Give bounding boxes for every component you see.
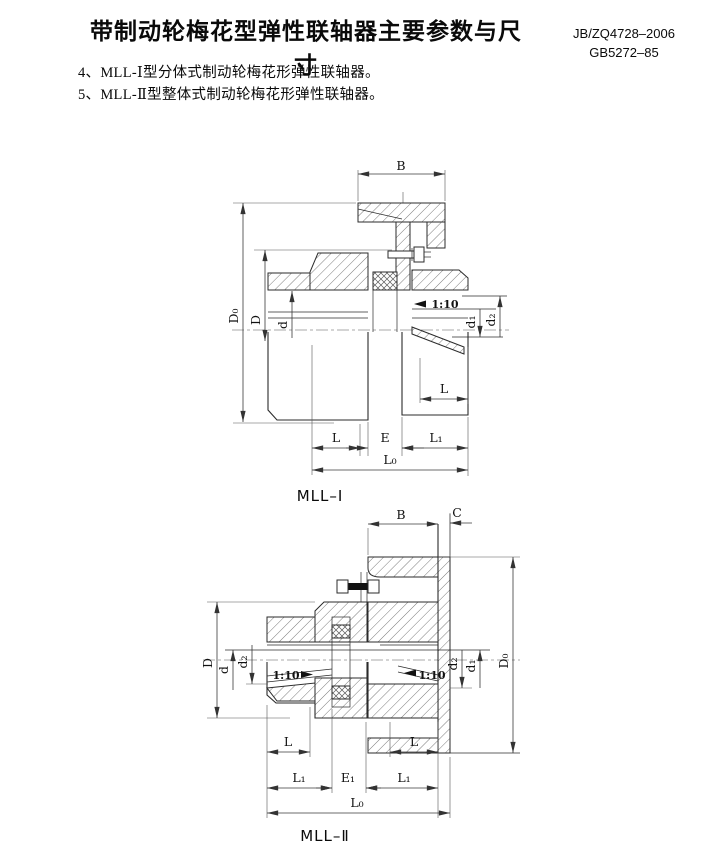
dim-label-lbore-1: L bbox=[440, 381, 448, 396]
dim-label-ll-2: L bbox=[284, 734, 292, 749]
standard-gb: GB5272–85 bbox=[556, 43, 692, 62]
dim-label-l-1: L bbox=[332, 430, 340, 445]
dim-label-d2l-2: d₂ bbox=[235, 655, 250, 668]
elastomer-spider-section bbox=[332, 617, 350, 707]
dim-label-d-1: d bbox=[275, 321, 290, 329]
dim-label-l1-1: L₁ bbox=[429, 430, 442, 445]
dim-label-l0-2: L₀ bbox=[350, 795, 363, 810]
standard-numbers: JB/ZQ4728–2006 GB5272–85 bbox=[556, 24, 692, 62]
dim-label-taper-left: 1:10 bbox=[272, 669, 299, 682]
dim-label-l0-1: L₀ bbox=[383, 452, 396, 467]
figure-mll-1-drawing: B D₀ D d d₁ d₂ 1:10 L L E bbox=[225, 160, 515, 490]
dim-label-b2: B bbox=[396, 507, 405, 522]
dim-label-d2r-2: d₂ bbox=[445, 657, 460, 670]
figure-mll-2-drawing: B C D₀ D d d₂ 1:10 1:10 d₂ d₁ bbox=[195, 505, 525, 825]
dim-label-taper-1: 1:10 bbox=[431, 298, 458, 311]
dim-label-e-1: E bbox=[380, 430, 389, 445]
dim-label-d1-2: d₁ bbox=[463, 659, 478, 672]
taper-arrow-icon bbox=[404, 670, 416, 677]
note-item-5: 5、MLL-Ⅱ型整体式制动轮梅花形弹性联轴器。 bbox=[78, 83, 598, 104]
figure2-dimensions: B C D₀ D d d₂ 1:10 1:10 d₂ d₁ bbox=[200, 505, 520, 818]
dim-label-l1r-2: L₁ bbox=[397, 770, 410, 785]
dim-label-d-2: d bbox=[216, 666, 231, 674]
dim-label-e1-2: E₁ bbox=[341, 770, 355, 785]
right-half-coupling-section bbox=[402, 270, 507, 415]
dim-label-d0-2: D₀ bbox=[496, 653, 511, 668]
dim-label-dd-2: D bbox=[200, 658, 215, 668]
dim-label-d2-1: d₂ bbox=[483, 313, 498, 326]
left-half-coupling-section bbox=[268, 253, 368, 420]
dim-label-d1-1: d₁ bbox=[463, 315, 478, 328]
dim-label-lr-2: L bbox=[410, 734, 418, 749]
note-item-4: 4、MLL-Ⅰ型分体式制动轮梅花形弹性联轴器。 bbox=[78, 61, 598, 82]
dim-label-b1: B bbox=[396, 158, 405, 173]
standard-jb: JB/ZQ4728–2006 bbox=[556, 24, 692, 43]
taper-arrow-icon bbox=[414, 301, 426, 308]
dim-label-l1l-2: L₁ bbox=[292, 770, 305, 785]
dim-label-c2: C bbox=[452, 505, 462, 520]
dim-label-taper-right: 1:10 bbox=[418, 669, 445, 682]
catalog-page: { "header": { "title": "带制动轮梅花型弹性联轴器主要参数… bbox=[0, 0, 725, 855]
dim-label-d0-1: D₀ bbox=[226, 308, 241, 323]
dim-label-dd-1: D bbox=[248, 315, 263, 325]
figure-2-caption: MLL–Ⅱ bbox=[280, 827, 370, 845]
figure-1-caption: MLL–Ⅰ bbox=[275, 487, 365, 505]
elastomer-spider-section bbox=[373, 272, 397, 332]
